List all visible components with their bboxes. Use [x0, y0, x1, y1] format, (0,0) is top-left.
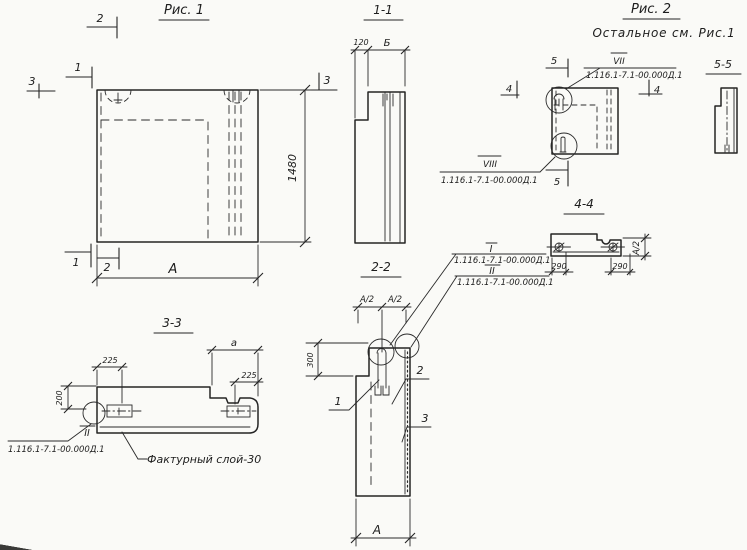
svg-text:225: 225 [102, 356, 117, 365]
svg-text:2: 2 [417, 364, 424, 377]
callout-vii: VII 1.116.1-7.1-00.000Д.1 [566, 53, 683, 89]
dim-width-A-section22: А [351, 499, 416, 546]
callout-ii-designation: 1.116.1-7.1-00.000Д.1 [457, 278, 554, 288]
dim-300: 300 [306, 339, 368, 380]
callout-i-roman: I [490, 244, 493, 255]
callout-ii-section33-designation: 1.116.1-7.1-00.000Д.1 [8, 445, 105, 455]
svg-text:А: А [168, 262, 178, 277]
svg-text:Б: Б [384, 38, 391, 49]
figure1-hidden-lines [101, 92, 241, 240]
svg-text:1: 1 [73, 256, 80, 269]
section11-inner-lines [383, 92, 400, 243]
section-mark-5-top: 5 [546, 56, 568, 77]
svg-text:3: 3 [324, 74, 331, 87]
figure2-pin-bottom [560, 137, 566, 152]
lifting-loop-right [224, 90, 250, 103]
facture-note: Фактурный слой-30 [122, 432, 261, 466]
svg-text:290: 290 [612, 262, 627, 271]
section-3-3: 3-3 225 а 225 200 [8, 316, 263, 466]
section44-title: 4-4 [574, 197, 594, 211]
svg-text:А: А [372, 523, 381, 537]
callout-ii-roman: II [489, 266, 495, 277]
section-mark-4-right: 4 [639, 80, 662, 96]
callout-i: I 1.116.1-7.1-00.000Д.1 [390, 243, 551, 345]
svg-text:2: 2 [97, 12, 104, 25]
callout-ii: II 1.116.1-7.1-00.000Д.1 [411, 265, 554, 347]
section-1-1: 1-1 120 Б [351, 3, 410, 243]
svg-text:300: 300 [306, 352, 315, 367]
svg-text:А/2: А/2 [632, 241, 642, 256]
figure2-title: Рис. 2 [631, 2, 671, 17]
dim-width-A: А [92, 245, 263, 286]
callout-ii-section33: II 1.116.1-7.1-00.000Д.1 [8, 424, 105, 455]
drawing-sheet: Рис. 1 2 1 3 3 [0, 0, 747, 550]
section-mark-1-bottom: 1 [65, 244, 91, 269]
callout-vii-roman: VII [613, 57, 625, 67]
callout-ii-section33-roman: II [84, 428, 90, 439]
part-leader-1: 1 [329, 380, 379, 410]
svg-text:200: 200 [55, 390, 64, 405]
figure1-title: Рис. 1 [164, 3, 204, 18]
section-5-5: 5-5 [706, 58, 741, 153]
svg-text:120: 120 [353, 38, 368, 47]
section-mark-3-left: 3 [27, 75, 55, 98]
svg-text:5: 5 [551, 56, 557, 67]
dim-height-1480: 1480 [260, 85, 311, 247]
anchor-left [102, 405, 141, 417]
detail-circle-i [368, 339, 394, 365]
section55-inner-lines [725, 89, 734, 152]
anchor-pin [375, 349, 389, 396]
figure2-pin-top [554, 94, 564, 110]
section-mark-4-left: 4 [501, 81, 519, 98]
section33-profile [97, 387, 258, 433]
figure1-panel-outline [97, 90, 258, 242]
figure2-subtitle: Остальное см. Рис.1 [592, 26, 735, 40]
section-mark-2-top: 2 [87, 12, 117, 38]
section-mark-3-right: 3 [308, 73, 337, 90]
scan-edge-artifact [0, 543, 40, 550]
dim-a2-section44: А/2 [623, 234, 651, 260]
figure-1: Рис. 1 2 1 3 3 [27, 3, 337, 286]
lifting-loop-left [105, 90, 131, 103]
section-mark-1-top: 1 [66, 61, 92, 88]
section-mark-2-bottom: 2 [97, 248, 119, 274]
svg-text:1: 1 [75, 61, 82, 74]
section11-title: 1-1 [373, 3, 393, 17]
callout-viii-roman: VIII [483, 160, 497, 170]
section11-profile [355, 92, 405, 243]
svg-text:225: 225 [241, 371, 256, 380]
section-2-2: 2-2 А/2 А/2 300 1 [306, 260, 431, 546]
callout-viii-designation: 1.116.1-7.1-00.000Д.1 [441, 176, 538, 186]
svg-text:А/2: А/2 [359, 295, 374, 305]
svg-text:1480: 1480 [286, 154, 299, 182]
svg-text:1: 1 [335, 395, 342, 408]
dim-120-and-b: 120 Б [351, 38, 410, 118]
figure-2: Рис. 2 Остальное см. Рис.1 VII 1.116.1-7… [440, 2, 736, 188]
callout-vii-designation: 1.116.1-7.1-00.000Д.1 [586, 71, 683, 81]
section-mark-5-bottom: 5 [546, 161, 568, 188]
callout-i-designation: 1.116.1-7.1-00.000Д.1 [454, 256, 551, 266]
callout-viii: VIII 1.116.1-7.1-00.000Д.1 [440, 156, 555, 186]
svg-text:А/2: А/2 [387, 295, 402, 305]
part-leader-3: 3 [402, 412, 431, 442]
section-4-4: 4-4 290 290 А/ [545, 197, 651, 275]
svg-text:4: 4 [506, 84, 512, 95]
section22-title: 2-2 [371, 260, 391, 274]
svg-text:3: 3 [29, 75, 36, 88]
svg-text:3: 3 [422, 412, 429, 425]
svg-text:а: а [231, 338, 237, 349]
section22-profile [356, 348, 410, 496]
section33-title: 3-3 [162, 316, 182, 330]
figure2-panel-outline [552, 88, 618, 154]
facture-note-text: Фактурный слой-30 [147, 453, 261, 466]
detail-circle-ii-section33 [83, 402, 105, 424]
section55-title: 5-5 [714, 58, 732, 71]
technical-drawing: Рис. 1 2 1 3 3 [0, 0, 747, 550]
svg-text:5: 5 [554, 177, 560, 188]
anchor-right [221, 406, 256, 417]
dim-200: 200 [55, 382, 96, 413]
detail-circle-ii [395, 334, 419, 358]
dim-290-right: 290 [605, 254, 635, 275]
svg-text:2: 2 [104, 261, 111, 274]
svg-text:290: 290 [551, 262, 566, 271]
